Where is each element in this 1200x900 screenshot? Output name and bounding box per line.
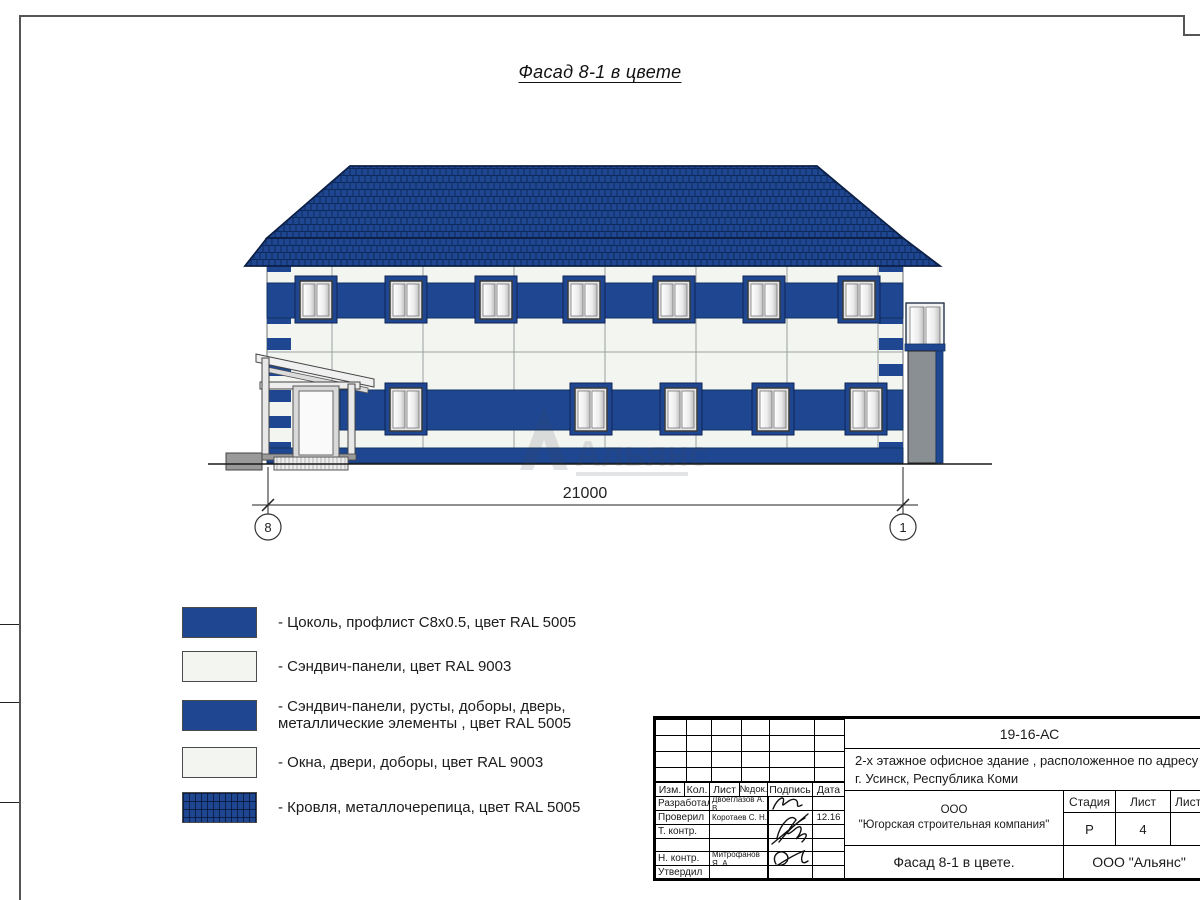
revision-grid	[655, 718, 845, 782]
col-header-izm: Изм.	[655, 782, 685, 797]
row-sign	[767, 865, 813, 879]
side-annex	[905, 303, 945, 463]
window	[660, 383, 702, 435]
sheets-value	[1170, 812, 1200, 846]
legend-swatch-roof	[182, 792, 257, 823]
annex-blue-cap	[905, 344, 945, 351]
row-role	[655, 838, 710, 852]
window	[385, 276, 427, 323]
row-date	[812, 851, 845, 866]
row-role: Разработал	[655, 796, 710, 811]
sheet-value: 4	[1115, 812, 1171, 846]
row-date	[812, 865, 845, 879]
window	[295, 276, 337, 323]
legend-swatch-white	[182, 651, 257, 682]
legend-item-plinth: - Цоколь, профлист С8х0.5, цвет RAL 5005	[182, 607, 576, 638]
annex-gray-shaft	[908, 351, 936, 463]
roof-upper-slope	[267, 166, 903, 238]
sheets-header: Листов	[1170, 790, 1200, 813]
window	[743, 276, 785, 323]
roof-lower-slope	[245, 238, 940, 266]
col-header-list: Лист	[709, 782, 740, 797]
org-name: ООО "Альянс"	[1063, 845, 1200, 879]
porch-post-right	[348, 384, 355, 460]
row-name: Митрофанов Я. А.	[709, 851, 769, 866]
entrance-door	[299, 391, 333, 455]
legend-item-sandwich-blue: - Сэндвич-панели, русты, доборы, дверь, …	[182, 698, 571, 732]
legend-label: - Сэндвич-панели, русты, доборы, дверь,	[278, 698, 571, 715]
axis-label-left: 8	[264, 520, 271, 535]
row-role: Т. контр.	[655, 824, 710, 839]
row-sign	[767, 796, 813, 811]
stage-header: Стадия	[1063, 790, 1116, 813]
company-name: ООО "Югорская строительная компания"	[844, 790, 1064, 846]
roof	[245, 166, 940, 266]
col-header-ndoc: №док.	[739, 782, 768, 797]
legend-item-sandwich-white: - Сэндвич-панели, цвет RAL 9003	[182, 651, 511, 682]
legend-swatch-white	[182, 747, 257, 778]
row-date	[812, 838, 845, 852]
project-description-line2: г. Усинск, Республика Коми	[855, 770, 1198, 788]
row-name: Двоеглазов А. В.	[709, 796, 769, 811]
window	[845, 383, 887, 435]
sheet-header: Лист	[1115, 790, 1171, 813]
legend-item-roof: - Кровля, металлочерепица, цвет RAL 5005	[182, 792, 580, 823]
porch-post-left	[262, 358, 269, 460]
axis-markers: 8 1	[255, 514, 916, 540]
window	[475, 276, 517, 323]
project-description: 2-х этажное офисное здание , расположенн…	[844, 748, 1200, 791]
row-role: Проверил	[655, 810, 710, 825]
axis-label-right: 1	[899, 520, 906, 535]
legend-item-windows: - Окна, двери, доборы, цвет RAL 9003	[182, 747, 543, 778]
row-role: Н. контр.	[655, 851, 710, 866]
row-name	[709, 865, 769, 879]
drawing-sheet: { "sheet": { "title": "Фасад 8-1 в цвете…	[0, 0, 1200, 900]
row-sign	[767, 851, 813, 866]
col-header-kol: Кол.	[684, 782, 710, 797]
dimension-value: 21000	[563, 485, 608, 502]
doc-number: 19-16-АС	[844, 718, 1200, 749]
row-name: Коротаев С. Н.	[709, 810, 769, 825]
window	[752, 383, 794, 435]
legend-label: - Сэндвич-панели, цвет RAL 9003	[278, 658, 511, 675]
legend-label: - Цоколь, профлист С8х0.5, цвет RAL 5005	[278, 614, 576, 631]
row-date	[812, 824, 845, 839]
stage-value: Р	[1063, 812, 1116, 846]
legend-swatch-blue	[182, 607, 257, 638]
drawing-title: Фасад 8-1 в цвете.	[844, 845, 1064, 879]
window	[653, 276, 695, 323]
row-sign	[767, 838, 813, 852]
col-header-podpis: Подпись	[767, 782, 813, 797]
row-date: 12.16	[812, 810, 845, 825]
window	[385, 383, 427, 435]
row-name	[709, 838, 769, 852]
window	[563, 276, 605, 323]
row-role: Утвердил	[655, 865, 710, 879]
window	[838, 276, 880, 323]
legend-swatch-blue	[182, 700, 257, 731]
row-sign	[767, 824, 813, 839]
annex-blue-trim	[936, 351, 943, 463]
window	[570, 383, 612, 435]
row-name	[709, 824, 769, 839]
row-date	[812, 796, 845, 811]
side-stoop	[226, 453, 262, 470]
row-sign	[767, 810, 813, 825]
legend-label: металлические элементы , цвет RAL 5005	[278, 715, 571, 732]
watermark-text: Альянс	[575, 433, 709, 474]
legend-label: - Кровля, металлочерепица, цвет RAL 5005	[278, 799, 580, 816]
col-header-data: Дата	[812, 782, 845, 797]
legend-label: - Окна, двери, доборы, цвет RAL 9003	[278, 754, 543, 771]
project-description-line1: 2-х этажное офисное здание , расположенн…	[855, 752, 1198, 770]
